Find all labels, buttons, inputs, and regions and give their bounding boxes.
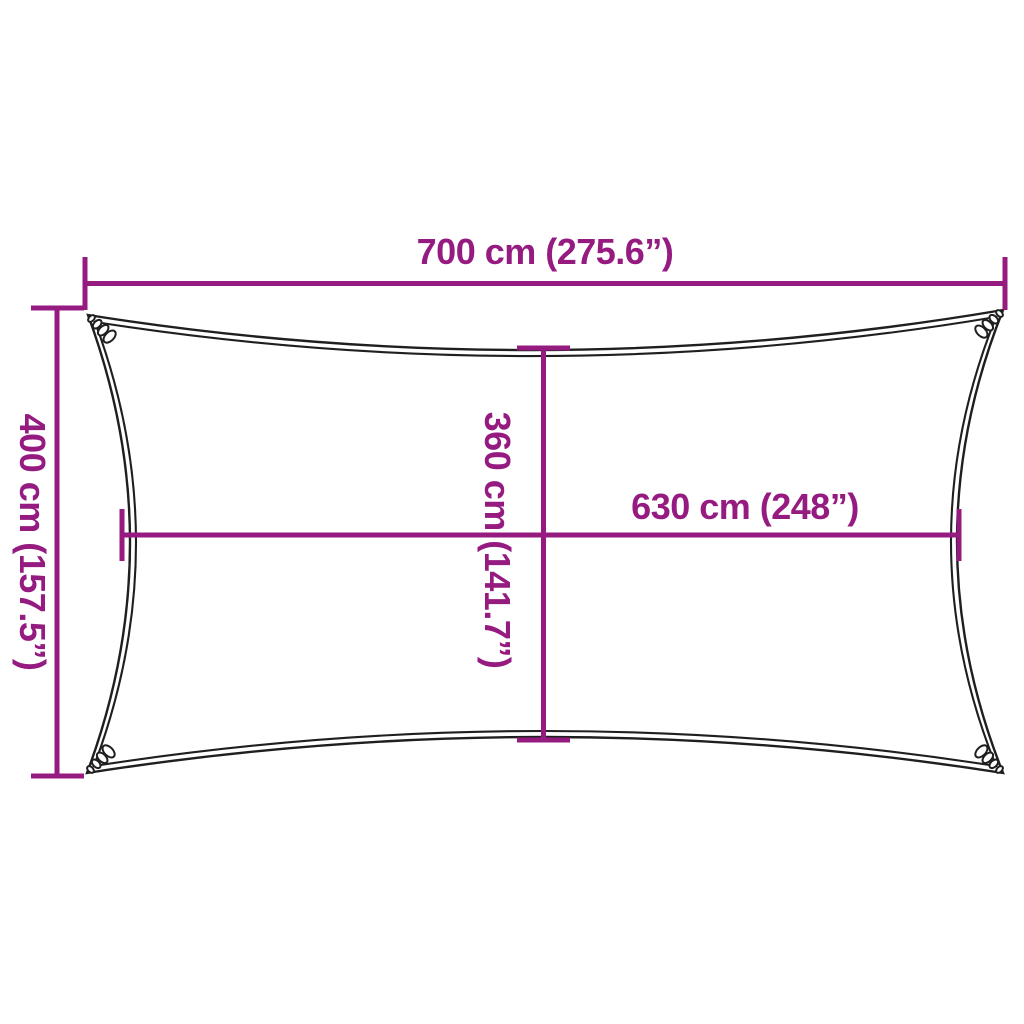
diagram-canvas: 700 cm (275.6”) 630 cm (248”) 400 cm (15… (0, 0, 1024, 1024)
dimension-line-inner-height (517, 348, 570, 740)
dimension-label-left-height: 400 cm (157.5”) (12, 414, 52, 671)
dimension-label-top-width: 700 cm (275.6”) (195, 232, 895, 272)
dimension-label-inner-height: 360 cm (141.7”) (477, 412, 517, 669)
dimension-label-inner-width: 630 cm (248”) (545, 487, 945, 527)
